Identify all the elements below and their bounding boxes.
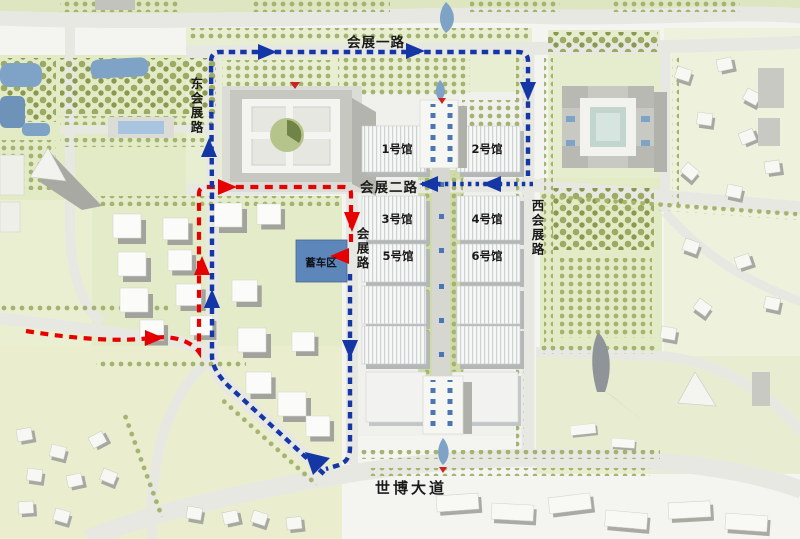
northeast-building [562,86,667,172]
road-label-dong-huizhan-lu: 东会展路 [191,76,204,135]
building-slab [668,501,714,523]
hall-label-4: 4号馆 [471,212,503,226]
hall-label-6: 6号馆 [471,249,503,263]
map-canvas: 会展一路 东会展路 会展二路 会展路 西会展路 世博大道 1号馆 2号馆 3号馆… [0,0,800,539]
building-slab [725,513,771,536]
road-label-huizhan-er-lu: 会展二路 [360,179,418,196]
house [659,326,679,344]
road-label-huizhan-yi-lu: 会展一路 [347,34,405,51]
road-label-huizhan-lu: 会展路 [357,226,370,270]
hall-label-5: 5号馆 [382,249,414,263]
site-plan-map: 会展一路 东会展路 会展二路 会展路 西会展路 世博大道 1号馆 2号馆 3号馆… [0,0,800,539]
northwest-building [222,82,376,196]
staging-area-label: 蓄车区 [305,256,337,269]
house [185,506,205,524]
building-slab [604,510,651,534]
building-slab [491,503,537,525]
hall-label-1: 1号馆 [381,142,413,156]
building-slab [611,438,636,451]
hall-label-2: 2号馆 [471,142,503,156]
road-label-xi-huizhan-lu: 西会展路 [532,198,545,257]
hall-label-3: 3号馆 [381,212,413,226]
road-label-shibo-dadao: 世博大道 [375,479,447,497]
